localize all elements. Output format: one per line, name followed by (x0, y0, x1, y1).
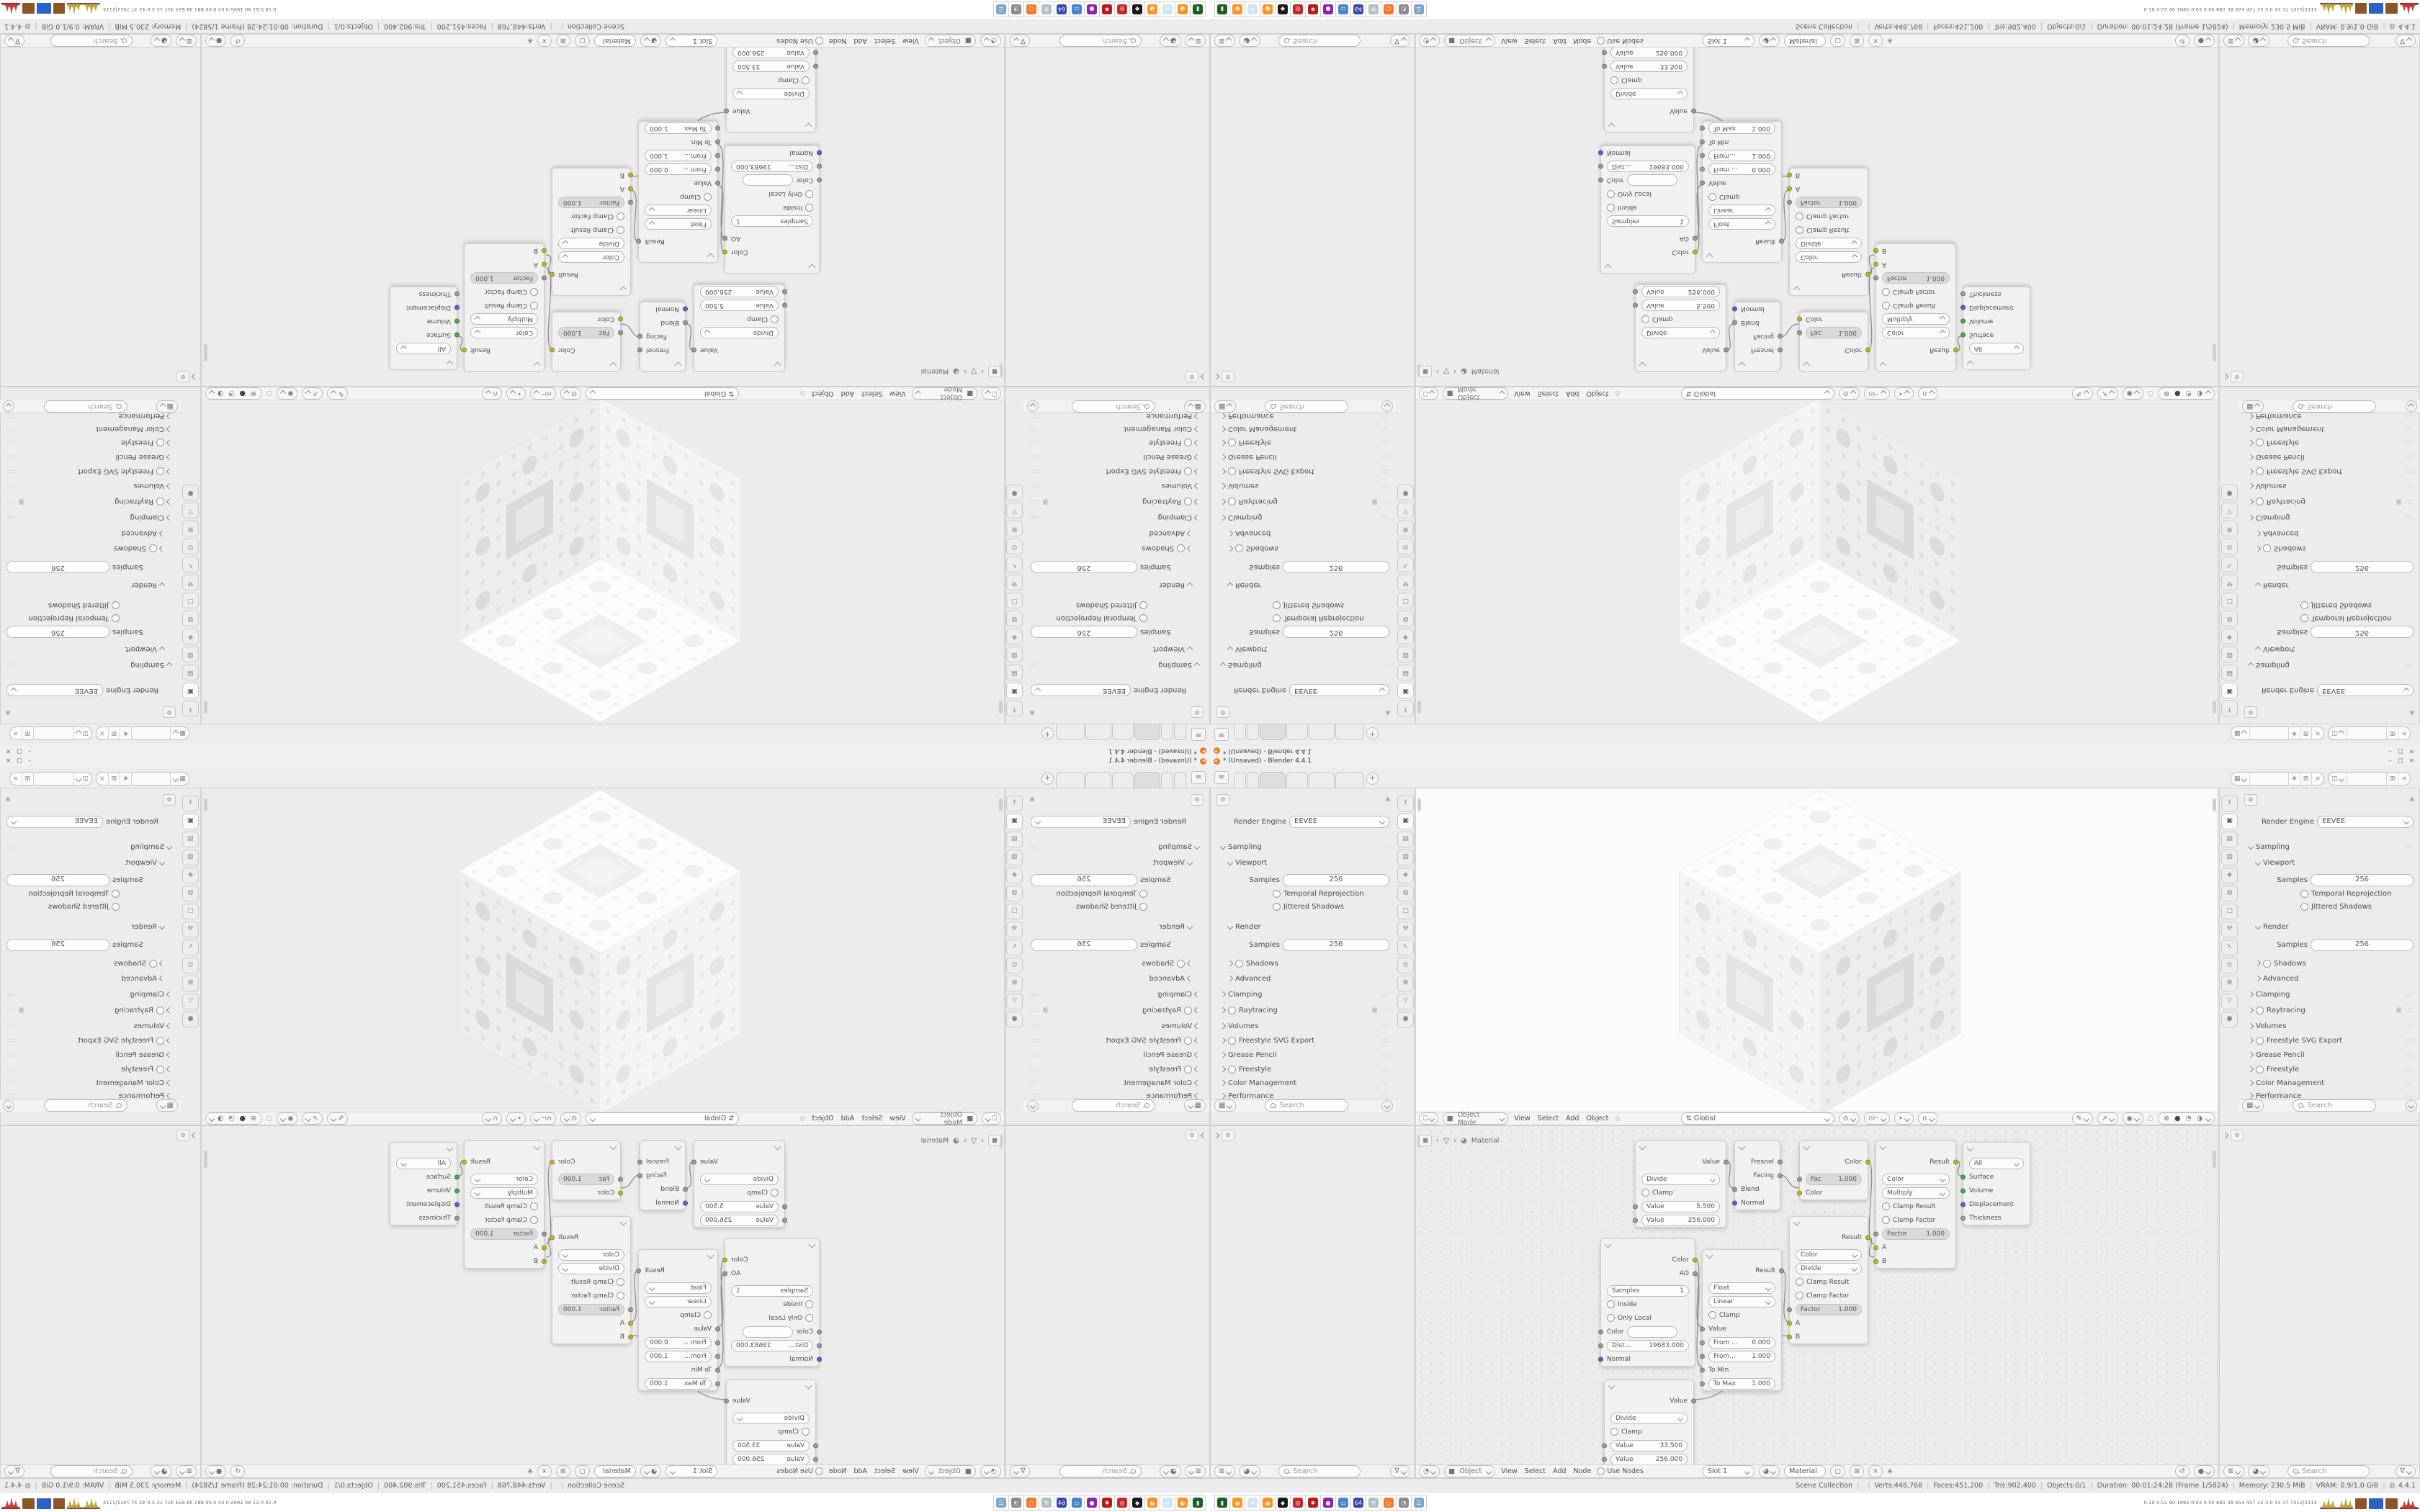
node-value-field[interactable]: Dist...19683.000 (1607, 1340, 1689, 1351)
render-engine-dropdown[interactable]: EEVEE (1031, 685, 1131, 697)
disclosure-chevron-icon[interactable] (2255, 582, 2261, 588)
prop-render[interactable]: Render (1023, 921, 1209, 932)
node-fresnel[interactable]: FresnelFacingBlendNormal (1734, 1140, 1780, 1210)
node-fresnel[interactable]: FresnelFacingBlendNormal (640, 302, 686, 372)
use-nodes-checkbox[interactable]: Use Nodes (1597, 37, 1644, 45)
node-value-field[interactable]: Value33.500 (1610, 1440, 1688, 1452)
node-value-field[interactable]: From ...0.000 (1708, 164, 1775, 176)
panel-search-input[interactable]: Search (1059, 1465, 1142, 1477)
prop-raytracing[interactable]: Raytracing≣∷∷ (0, 1004, 181, 1016)
prop-freestyle[interactable]: Freestyle∷∷ (2238, 437, 2420, 449)
node-value-field[interactable]: Samples1 (1607, 216, 1689, 228)
disclosure-chevron-icon[interactable] (1194, 483, 1200, 489)
node-value-field[interactable]: Value256.000 (1641, 287, 1720, 298)
object-mode-dropdown[interactable]: ■ Object Mode (1443, 387, 1509, 400)
taskbar-app-documents[interactable]: ☰ (1411, 1495, 1427, 1511)
pin-icon[interactable] (120, 773, 131, 785)
prop-samples[interactable]: Samples256 (1023, 626, 1209, 638)
input-socket[interactable] (1787, 200, 1792, 205)
node-value-field[interactable]: Samples1 (731, 216, 813, 228)
color-swatch-field[interactable] (1627, 1326, 1677, 1338)
view-layer-properties-tab-icon[interactable]: ▥ (1397, 850, 1414, 865)
panel-search-input[interactable]: Search (2287, 1465, 2370, 1477)
shading-mode-1[interactable]: ● (2173, 1115, 2182, 1122)
enable-checkbox[interactable] (1235, 545, 1243, 553)
node-checkbox[interactable] (805, 1300, 813, 1308)
taskbar-app-text-editor[interactable]: ≡ (1160, 1495, 1175, 1511)
taskbar-app-mumble[interactable]: ● (1084, 1495, 1100, 1511)
node-dropdown[interactable]: Multiply (1882, 314, 1950, 325)
data-properties-tab-icon[interactable]: ▽ (1006, 994, 1023, 1009)
drag-dots-icon[interactable]: ∷∷ (1031, 499, 1039, 505)
render-properties-tab-icon[interactable]: ▣ (1397, 814, 1414, 829)
object-properties-tab-icon[interactable]: □ (2221, 904, 2238, 919)
node-dropdown[interactable]: Linear (1708, 1296, 1775, 1308)
disclosure-chevron-icon[interactable] (2248, 454, 2254, 460)
node-dropdown[interactable]: All (396, 1158, 451, 1169)
node-dropdown[interactable]: Divide (1641, 1174, 1720, 1185)
enable-checkbox[interactable] (156, 468, 164, 476)
material-properties-tab-icon[interactable]: ● (2221, 485, 2238, 500)
disclosure-chevron-icon[interactable] (1194, 1066, 1200, 1072)
taskbar-app-tools[interactable]: ⚒ (1039, 1, 1054, 17)
add-workspace-button[interactable]: + (1041, 727, 1054, 739)
node-value-field[interactable]: Value33.500 (732, 61, 810, 73)
menu-node[interactable]: Node (1572, 1467, 1593, 1475)
xray-toggle-icon[interactable]: ○ (2148, 1115, 2154, 1122)
prop-temporal-reprojection[interactable]: Temporal Reprojection (0, 613, 181, 624)
constraints-properties-tab-icon[interactable]: ⊞ (1006, 521, 1023, 536)
enable-checkbox[interactable] (2263, 545, 2271, 553)
input-socket[interactable] (817, 1343, 822, 1348)
prop-freestyle[interactable]: Freestyle∷∷ (1023, 1063, 1209, 1075)
prop-sampling[interactable]: Sampling∷∷ (0, 841, 181, 852)
filter-mode-icon[interactable]: ◕ (1239, 35, 1260, 47)
disclosure-chevron-icon[interactable] (1220, 1080, 1226, 1086)
menu-view[interactable]: View (1512, 1115, 1532, 1122)
disclosure-chevron-icon[interactable] (1220, 1093, 1226, 1099)
disclosure-chevron-icon[interactable] (1194, 469, 1200, 474)
shading-mode-switch[interactable]: ⊕●◔◑ (205, 387, 262, 400)
snapshot-icon[interactable]: ↺ (2175, 1465, 2190, 1477)
disclosure-chevron-icon[interactable] (1194, 1080, 1200, 1086)
panel-editor-icon[interactable]: ⚙ (2231, 1130, 2244, 1141)
new-view-layer-icon[interactable]: ⊞ (2387, 773, 2399, 785)
proportional-falloff-icon[interactable]: ∩ (1918, 1112, 1938, 1125)
funnel-filter-icon[interactable]: ∇ (1390, 35, 1410, 47)
prop-clamping[interactable]: Clamping∷∷ (2238, 989, 2420, 1000)
node-checkbox[interactable] (617, 226, 624, 234)
drag-dots-icon[interactable]: ∷∷ (1031, 426, 1039, 433)
input-socket[interactable] (715, 1340, 720, 1345)
material-properties-tab-icon[interactable]: ● (1006, 1012, 1023, 1027)
node-dropdown[interactable]: All (396, 343, 451, 355)
gizmos-toggle-icon[interactable]: ↗ (302, 387, 323, 400)
transform-orientation-dropdown[interactable]: ⇅ Global (1681, 1112, 1834, 1125)
checkbox[interactable] (1273, 903, 1281, 911)
drag-dots-icon[interactable]: ∷∷ (6, 515, 15, 521)
drag-dots-icon[interactable]: ∷∷ (6, 1023, 15, 1030)
particles-properties-tab-icon[interactable]: ↖ (2221, 557, 2238, 572)
prop-samples[interactable]: Samples256 (2238, 939, 2420, 950)
drag-dots-icon[interactable]: ∷∷ (1381, 844, 1389, 850)
drag-dots-icon[interactable]: ∷∷ (2405, 1023, 2414, 1030)
input-socket[interactable] (628, 200, 633, 205)
taskbar-app-firefox-2[interactable]: ◕ (1260, 1, 1276, 17)
prop-shadows[interactable]: Shadows (2238, 958, 2420, 969)
view-layer-properties-tab-icon[interactable]: ▥ (2221, 647, 2238, 662)
node-dropdown[interactable]: Divide (700, 1174, 779, 1185)
drag-dots-icon[interactable]: ∷∷ (1031, 662, 1039, 669)
physics-properties-tab-icon[interactable]: ◎ (2221, 958, 2238, 973)
node-value-field[interactable]: Value5.500 (700, 300, 779, 312)
disclosure-chevron-icon[interactable] (166, 515, 172, 521)
input-socket[interactable] (628, 1307, 633, 1312)
render-properties-tab-icon[interactable]: ▣ (2221, 683, 2238, 698)
taskbar-app-terminal[interactable]: ▮ (1214, 1495, 1230, 1511)
taskbar-app-text-editor[interactable]: ≡ (1245, 1495, 1260, 1511)
prop-temporal-reprojection[interactable]: Temporal Reprojection (1023, 613, 1209, 624)
node-ambient-occlusion[interactable]: ColorAOSamples1InsideOnly LocalColorDist… (725, 1238, 820, 1367)
node-value-field[interactable]: Value5.500 (1641, 300, 1720, 312)
new-view-layer-icon[interactable]: ⊞ (22, 773, 34, 785)
number-field[interactable]: 256 (6, 562, 109, 574)
funnel-filter-icon[interactable]: ∇ (2396, 35, 2416, 47)
filter-mode-icon[interactable]: ◕ (1160, 35, 1181, 47)
taskbar-app-emblem-red[interactable]: ◎ (1290, 1495, 1306, 1511)
enable-checkbox[interactable] (1235, 960, 1243, 968)
render-properties-tab-icon[interactable]: ▣ (2221, 814, 2238, 829)
output-socket[interactable] (636, 239, 641, 244)
drag-dots-icon[interactable]: ∷∷ (1031, 483, 1039, 490)
enable-checkbox[interactable] (1184, 1037, 1192, 1045)
shading-mode-2[interactable]: ◔ (2184, 1115, 2192, 1122)
disclosure-chevron-icon[interactable] (159, 582, 165, 588)
taskbar-app-display-settings[interactable]: ▭ (1335, 1, 1351, 17)
drag-dots-icon[interactable]: ∷∷ (1031, 515, 1039, 521)
new-material-icon[interactable]: ⊞ (556, 1465, 570, 1477)
physics-properties-tab-icon[interactable]: ◎ (182, 958, 199, 973)
mirror-toggle-icon[interactable]: ◎ (799, 390, 805, 397)
input-socket[interactable] (813, 1457, 818, 1462)
prop-raytracing[interactable]: Raytracing≣∷∷ (0, 496, 181, 508)
world-properties-tab-icon[interactable]: ◍ (182, 886, 199, 901)
viewport-left-scroll-nub[interactable] (999, 798, 1003, 811)
input-socket[interactable] (1873, 276, 1878, 281)
prop-advanced[interactable]: Advanced (1023, 973, 1209, 984)
tool-properties-tab-icon[interactable]: Y (1397, 796, 1414, 811)
tool-properties-tab-icon[interactable]: Y (2221, 701, 2238, 716)
taskbar-app-tools[interactable]: ⚒ (1039, 1495, 1054, 1511)
unlink-material-icon[interactable]: × (537, 1465, 552, 1477)
tool-properties-tab-icon[interactable]: Y (182, 701, 199, 716)
prop-freestyle-svg-export[interactable]: Freestyle SVG Export∷∷ (0, 1035, 181, 1046)
checkbox[interactable] (1139, 602, 1147, 610)
checkbox[interactable] (1273, 602, 1281, 610)
menu-add[interactable]: Add (1551, 37, 1567, 45)
input-socket[interactable] (817, 1329, 822, 1334)
list-display-icon[interactable]: ≣ (2223, 35, 2244, 47)
node-checkbox[interactable] (805, 190, 813, 198)
node-value-field[interactable]: Fac1.000 (1806, 1174, 1862, 1185)
prop-jittered-shadows[interactable]: Jittered Shadows (0, 600, 181, 611)
input-socket[interactable] (1732, 307, 1737, 312)
disclosure-chevron-icon[interactable] (1194, 440, 1200, 446)
node-math-divide-2[interactable]: ValueDivideClampValue33.500Value256.000 (1604, 1380, 1694, 1467)
world-properties-tab-icon[interactable]: ◍ (2221, 886, 2238, 901)
shading-mode-0[interactable]: ⊕ (249, 390, 258, 397)
drag-dots-icon[interactable]: ∷∷ (6, 1038, 15, 1044)
shading-mode-switch[interactable]: ⊕●◔◑ (205, 1112, 262, 1125)
maximize-button[interactable]: ◻ (2398, 757, 2403, 765)
input-socket[interactable] (1732, 320, 1737, 325)
disclosure-chevron-icon[interactable] (1187, 924, 1193, 930)
checkbox[interactable] (1139, 890, 1147, 898)
prop-grease-pencil[interactable]: Grease Pencil∷∷ (1211, 1049, 1397, 1061)
viewport-3d[interactable]: ⎕ ■ Object Mode View Select Add Object ◎… (1415, 387, 2218, 724)
color-swatch-field[interactable] (743, 1326, 794, 1338)
prop-freestyle[interactable]: Freestyle∷∷ (0, 437, 181, 449)
pin-id-icon[interactable] (1385, 796, 1391, 804)
output-socket[interactable] (1778, 1173, 1783, 1178)
viewport-3d[interactable]: ⎕ ■ Object Mode View Select Add Object ◎… (202, 788, 1005, 1125)
expand-chevron-icon[interactable] (2223, 374, 2228, 379)
object-properties-tab-icon[interactable]: □ (182, 593, 199, 608)
input-socket[interactable] (1700, 1354, 1705, 1359)
shading-mode-3[interactable]: ◑ (2195, 390, 2204, 397)
xray-toggle-icon[interactable]: ○ (266, 390, 272, 397)
material-properties-tab-icon[interactable]: ● (182, 1012, 199, 1027)
properties-search-input[interactable]: Search (2293, 1099, 2376, 1112)
node-value-field[interactable]: From ...0.000 (1708, 1337, 1775, 1349)
prop-color-management[interactable]: Color Management∷∷ (0, 1077, 181, 1089)
new-material-icon[interactable]: ⊞ (556, 35, 570, 47)
menu-node[interactable]: Node (828, 1467, 848, 1475)
prop-samples[interactable]: Samples256 (2238, 626, 2420, 638)
transform-orientation-dropdown[interactable]: ⇅ Global (1681, 387, 1834, 400)
disclosure-chevron-icon[interactable] (2248, 1038, 2254, 1043)
prop-freestyle-svg-export[interactable]: Freestyle SVG Export∷∷ (1211, 466, 1397, 477)
list-display-icon[interactable]: ≣ (2223, 1465, 2244, 1477)
enable-checkbox[interactable] (149, 545, 157, 553)
input-socket[interactable] (542, 1245, 547, 1250)
properties-search-input[interactable]: Search (44, 1099, 127, 1112)
node-math-divide-2[interactable]: ValueDivideClampValue33.500Value256.000 (1604, 45, 1694, 132)
scene-properties-tab-icon[interactable]: ◈ (1397, 868, 1414, 883)
render-engine-dropdown[interactable]: EEVEE (2317, 816, 2414, 828)
drag-dots-icon[interactable]: ∷∷ (2405, 440, 2414, 446)
prop-advanced[interactable]: Advanced (1211, 973, 1397, 984)
drag-dots-icon[interactable]: ∷∷ (6, 1066, 15, 1073)
funnel-filter-icon[interactable]: ∇ (4, 35, 24, 47)
disclosure-chevron-icon[interactable] (1194, 499, 1200, 505)
workspace-tab-2[interactable] (1247, 772, 1259, 788)
particles-properties-tab-icon[interactable]: ↖ (182, 557, 199, 572)
app-menu-icon[interactable]: ≡ (1214, 771, 1229, 784)
xray-toggle-icon[interactable]: ○ (266, 1115, 272, 1122)
unlink-scene-icon[interactable]: × (97, 773, 108, 785)
properties-editor-icon[interactable]: ⚙ (1191, 706, 1204, 718)
gizmos-toggle-icon[interactable]: ↗ (2097, 1112, 2118, 1125)
shading-mode-3[interactable]: ◑ (216, 1115, 225, 1122)
panel-search-input[interactable]: Search (50, 1465, 133, 1477)
input-socket[interactable] (454, 1215, 460, 1220)
node-material-output[interactable]: AllSurfaceVolumeDisplacementThickness (1963, 1142, 2030, 1225)
drag-dots-icon[interactable]: ∷∷ (1381, 483, 1389, 490)
input-socket[interactable] (1700, 140, 1705, 145)
disclosure-chevron-icon[interactable] (1187, 976, 1193, 981)
properties-search-input[interactable]: Search (1072, 400, 1155, 413)
prop-color-management[interactable]: Color Management∷∷ (2238, 423, 2420, 435)
drag-dots-icon[interactable]: ∷∷ (1381, 662, 1389, 669)
gizmos-toggle-icon[interactable]: ↗ (302, 1112, 323, 1125)
drag-dots-icon[interactable]: ∷∷ (1031, 991, 1039, 998)
unlink-scene-icon[interactable]: × (2312, 773, 2323, 785)
scene-properties-tab-icon[interactable]: ◈ (182, 629, 199, 644)
panel-editor-icon[interactable]: ⚙ (2231, 371, 2244, 382)
menu-select[interactable]: Select (1536, 390, 1560, 397)
node-value-field[interactable]: Factor1.000 (558, 1304, 624, 1315)
app-menu-icon[interactable]: ≡ (1191, 771, 1206, 784)
prop-freestyle[interactable]: Freestyle∷∷ (1211, 1063, 1397, 1075)
workspace-tab-4[interactable] (1112, 772, 1134, 788)
enable-checkbox[interactable] (1228, 1066, 1236, 1074)
scene-name-field[interactable] (2250, 727, 2289, 739)
list-icon[interactable]: ≣ (1371, 498, 1377, 506)
pin-id-icon[interactable] (2409, 708, 2415, 716)
scene-selector[interactable]: ▦ ⊞ × (96, 726, 189, 740)
node-dropdown[interactable]: Float (645, 1282, 712, 1294)
number-field[interactable]: 256 (1283, 626, 1389, 639)
drag-dots-icon[interactable]: ∷∷ (2405, 454, 2414, 461)
enable-checkbox[interactable] (2263, 960, 2271, 968)
data-properties-tab-icon[interactable]: ▽ (2221, 503, 2238, 518)
disclosure-chevron-icon[interactable] (159, 546, 165, 552)
node-ambient-occlusion[interactable]: ColorAOSamples1InsideOnly LocalColorDist… (1600, 145, 1695, 274)
drag-dots-icon[interactable]: ∷∷ (1031, 1080, 1039, 1086)
disclosure-chevron-icon[interactable] (159, 976, 165, 981)
input-socket[interactable] (715, 140, 720, 145)
input-socket[interactable] (1598, 178, 1603, 183)
data-properties-tab-icon[interactable]: ▽ (2221, 994, 2238, 1009)
input-socket[interactable] (1960, 1202, 1966, 1207)
overlay-toggle-icon[interactable]: ● (205, 35, 226, 47)
drag-dots-icon[interactable]: ∷∷ (1381, 1066, 1389, 1073)
prop-clamping[interactable]: Clamping∷∷ (1211, 989, 1397, 1000)
modifiers-properties-tab-icon[interactable]: ⚒ (182, 575, 199, 590)
slot-dropdown[interactable]: Slot 1 (1703, 35, 1754, 47)
output-properties-tab-icon[interactable]: ▤ (2221, 832, 2238, 847)
shading-mode-2[interactable]: ◔ (2184, 390, 2192, 397)
enable-checkbox[interactable] (2256, 1037, 2264, 1045)
prop-samples[interactable]: Samples256 (0, 874, 181, 886)
shader-type-dropdown[interactable]: ■ Object (925, 1465, 976, 1477)
enable-checkbox[interactable] (1177, 960, 1185, 968)
number-field[interactable]: 256 (1031, 562, 1137, 574)
input-socket[interactable] (715, 1381, 720, 1386)
input-socket[interactable] (683, 307, 688, 312)
input-socket[interactable] (1633, 303, 1638, 308)
annotate-tool-icon[interactable]: ✎ (327, 387, 348, 400)
node-dropdown[interactable]: Float (645, 219, 712, 230)
node-dropdown[interactable]: Color (558, 252, 624, 264)
drag-dots-icon[interactable]: ∷∷ (6, 844, 15, 850)
output-socket[interactable] (722, 250, 727, 255)
overlays-toggle-icon[interactable]: ◉ (277, 1112, 297, 1125)
taskbar-app-inkscape[interactable]: ◆ (1129, 1, 1145, 17)
material-name-field[interactable]: Material (594, 35, 636, 47)
enable-checkbox[interactable] (1228, 468, 1236, 476)
unlink-material-icon[interactable]: × (1868, 1465, 1883, 1477)
input-socket[interactable] (1700, 1367, 1705, 1372)
disclosure-chevron-icon[interactable] (166, 483, 172, 489)
input-socket[interactable] (628, 1320, 633, 1326)
drag-dots-icon[interactable]: ∷∷ (1031, 1023, 1039, 1030)
panel-editor-icon[interactable]: ⚙ (1222, 1130, 1234, 1141)
object-mode-dropdown[interactable]: ■ Object Mode (912, 387, 978, 400)
options-chevron-icon[interactable] (2406, 401, 2417, 413)
workspace-tab-3[interactable] (1134, 724, 1160, 740)
disclosure-chevron-icon[interactable] (166, 1007, 172, 1013)
physics-properties-tab-icon[interactable]: ◎ (182, 539, 199, 554)
drag-dots-icon[interactable]: ∷∷ (6, 426, 15, 433)
node-map-range[interactable]: ResultFloatLinearClampValueFrom ...0.000… (1702, 1249, 1782, 1391)
properties-search-input[interactable]: Search (1265, 400, 1348, 413)
taskbar-app-gear-red[interactable]: ✸ (1099, 1, 1115, 17)
taskbar-app-blender-app[interactable]: ○ (1381, 1, 1397, 17)
node-checkbox[interactable] (1610, 1428, 1618, 1436)
prop-samples[interactable]: Samples256 (0, 939, 181, 950)
node-checkbox[interactable] (805, 1314, 813, 1322)
node-dropdown[interactable]: Color (558, 1249, 624, 1261)
shading-mode-0[interactable]: ⊕ (2162, 390, 2171, 397)
node-checkbox[interactable] (1708, 1311, 1716, 1319)
disclosure-chevron-icon[interactable] (1227, 976, 1233, 981)
funnel-filter-icon[interactable]: ∇ (1010, 35, 1030, 47)
output-socket[interactable] (724, 1398, 729, 1403)
prop-advanced[interactable]: Advanced (2238, 973, 2420, 984)
taskbar-app-terminal[interactable]: ▮ (1190, 1495, 1206, 1511)
output-socket[interactable] (1779, 239, 1784, 244)
checkbox[interactable] (1139, 615, 1147, 623)
prop-shadows[interactable]: Shadows (0, 543, 181, 554)
object-properties-tab-icon[interactable]: □ (1397, 593, 1414, 608)
input-socket[interactable] (542, 1231, 547, 1236)
material-properties-tab-icon[interactable]: ● (2221, 1012, 2238, 1027)
input-socket[interactable] (1598, 1356, 1603, 1362)
disclosure-chevron-icon[interactable] (166, 844, 172, 850)
input-socket[interactable] (1797, 1176, 1802, 1182)
node-checkbox[interactable] (802, 76, 810, 84)
node-dropdown[interactable]: Color (470, 328, 538, 339)
display-mode-icon[interactable]: ▦ (1214, 400, 1236, 413)
data-properties-tab-icon[interactable]: ▽ (1006, 503, 1023, 518)
output-socket[interactable] (691, 1159, 696, 1164)
material-name-field[interactable]: Material (594, 1465, 636, 1477)
input-socket[interactable] (1873, 248, 1878, 253)
input-socket[interactable] (1873, 262, 1878, 267)
disclosure-chevron-icon[interactable] (1187, 960, 1193, 966)
enable-checkbox[interactable] (1184, 498, 1192, 506)
drag-dots-icon[interactable]: ∷∷ (6, 1052, 15, 1058)
input-socket[interactable] (817, 1356, 822, 1362)
node-math-divide-2[interactable]: ValueDivideClampValue33.500Value256.000 (726, 45, 816, 132)
output-socket[interactable] (1865, 1159, 1870, 1164)
fake-user-shield-icon[interactable]: ▢ (575, 35, 590, 47)
world-properties-tab-icon[interactable]: ◍ (1006, 886, 1023, 901)
constraints-properties-tab-icon[interactable]: ⊞ (2221, 976, 2238, 991)
number-field[interactable]: 256 (1031, 939, 1137, 951)
